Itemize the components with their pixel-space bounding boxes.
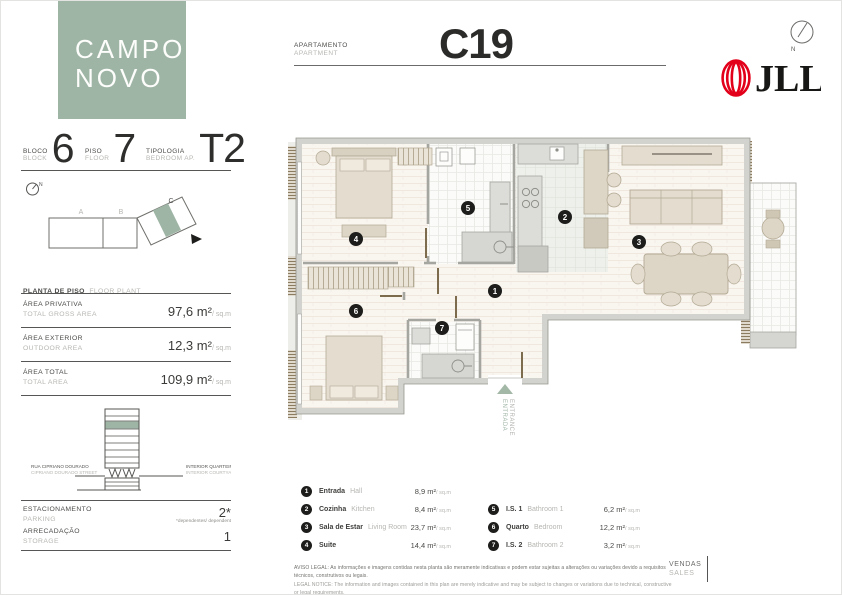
- legend-item-1: 1 Entrada Hall 8,9 m²/ sq.m: [301, 485, 451, 497]
- area-row-outdoor: ÁREA EXTERIOR OUTDOOR AREA 12,3 m²/ sq.m: [23, 335, 231, 352]
- floor-plan-label: PLANTA DE PISO FLOOR PLANT: [23, 280, 141, 298]
- divider: [21, 327, 231, 328]
- marker-5: 5: [466, 204, 471, 213]
- divider: [294, 65, 666, 66]
- toilet: [460, 148, 475, 164]
- legend-number: 1: [301, 486, 312, 497]
- legend-item-3: 3 Sala de Estar Living Room 23,7 m²/ sq.…: [301, 521, 451, 533]
- entrance-label-en: ENTRANCE: [508, 399, 514, 436]
- mini-compass-icon: N: [25, 180, 45, 198]
- street-label-en: CIPRIANO DOURADO STREET: [31, 470, 98, 475]
- terrace-table: [762, 217, 784, 239]
- area-row-private: ÁREA PRIVATIVA TOTAL GROSS AREA 97,6 m²/…: [23, 301, 231, 318]
- storage-label-pt: ARRECADAÇÃO: [23, 528, 231, 535]
- jll-rings-icon: [723, 61, 750, 96]
- mini-compass-n: N: [39, 182, 43, 188]
- parking-note: *dependentes/ dependent: [176, 519, 231, 524]
- terrace-chair: [766, 240, 780, 248]
- floor-plan-sheet: CAMPO NOVO BLOCO BLOCK 6 PISO FLOOR 7 TI…: [0, 0, 842, 595]
- campo-novo-logo: CAMPO NOVO: [58, 1, 186, 119]
- terrace-chair: [766, 210, 780, 218]
- marker-3: 3: [637, 238, 642, 247]
- divider: [21, 550, 231, 551]
- legend-number: 4: [301, 540, 312, 551]
- legend-item-7: 7 I.S. 2 Bathroom 2 3,2 m²/ sq.m: [488, 539, 640, 551]
- marker-6: 6: [354, 307, 359, 316]
- stat-typology-label-en: BEDROOM AP.: [146, 155, 195, 162]
- sales-label-en: SALES: [669, 570, 701, 577]
- stat-block-label-pt: BLOCO: [23, 148, 48, 155]
- legend-number: 7: [488, 540, 499, 551]
- terrace-wall: [750, 332, 796, 348]
- legend-item-5: 5 I.S. 1 Bathroom 1 6,2 m²/ sq.m: [488, 503, 640, 515]
- apartment-label: APARTAMENTO APARTMENT: [294, 42, 348, 57]
- legend-item-2: 2 Cozinha Kitchen 8,4 m²/ sq.m: [301, 503, 451, 515]
- footer-divider: [707, 556, 708, 582]
- tall-cabinet: [584, 150, 608, 214]
- jll-logo: JLL: [717, 49, 821, 105]
- courtyard-label-pt: INTERIOR QUARTEIRÃO: [186, 463, 231, 469]
- entrance-label-pt: ENTRADA: [501, 399, 507, 431]
- parking-row: ESTACIONAMENTO PARKING 2* *dependentes/ …: [23, 506, 231, 523]
- marker-4: 4: [354, 235, 359, 244]
- sink: [412, 328, 430, 344]
- wardrobe: [398, 148, 432, 165]
- divider: [21, 500, 231, 501]
- area-outdoor-value: 12,3 m²/ sq.m: [168, 338, 231, 353]
- stat-floor: PISO FLOOR 7: [85, 132, 135, 166]
- cabinet: [518, 246, 548, 272]
- legend-number: 5: [488, 504, 499, 515]
- key-plan-label-b: B: [119, 209, 124, 216]
- stat-typology: TIPOLOGIA BEDROOM AP. T2: [146, 132, 245, 166]
- section-highlighted-floor: [106, 422, 139, 429]
- apartment-label-en: APARTMENT: [294, 50, 348, 57]
- key-plan-label-a: A: [79, 209, 84, 216]
- stat-block: BLOCO BLOCK 6: [23, 132, 74, 166]
- divider: [21, 395, 231, 396]
- nightstand: [386, 386, 398, 400]
- bench: [342, 225, 386, 237]
- apartment-floor-plan: 1 2 3 4 5 6 7 ENTRADA ENTRANCE: [286, 128, 831, 438]
- stat-block-value: 6: [52, 132, 74, 166]
- key-plan-arrow-icon: [191, 234, 202, 244]
- legal-notice-pt: AVISO LEGAL: As informações e imagens co…: [294, 564, 672, 581]
- divider: [21, 293, 231, 294]
- area-private-value: 97,6 m²/ sq.m: [168, 304, 231, 319]
- marker-2: 2: [563, 213, 568, 222]
- legal-notice-en: LEGAL NOTICE: The information and images…: [294, 581, 672, 595]
- logo-line-1: CAMPO: [75, 35, 186, 64]
- area-total-value: 109,9 m²/ sq.m: [161, 372, 231, 387]
- building-section-diagram: RUA CIPRIANO DOURADO CIPRIANO DOURADO ST…: [31, 406, 231, 498]
- unit-code: C19: [381, 20, 513, 68]
- stat-floor-label-en: FLOOR: [85, 155, 109, 162]
- pilotis-icon: [109, 469, 121, 477]
- stat-typology-label-pt: TIPOLOGIA: [146, 148, 195, 155]
- sales-label: VENDAS SALES: [669, 561, 701, 577]
- marker-1: 1: [493, 287, 498, 296]
- jll-wordmark: JLL: [755, 58, 821, 100]
- island: [584, 218, 608, 248]
- divider: [21, 170, 231, 171]
- legend-number: 2: [301, 504, 312, 515]
- counter: [518, 144, 578, 164]
- street-label-pt: RUA CIPRIANO DOURADO: [31, 464, 89, 469]
- pilotis-icon: [123, 469, 135, 477]
- stool: [607, 173, 621, 187]
- legend-number: 3: [301, 522, 312, 533]
- storage-value: 1: [224, 529, 231, 544]
- counter: [518, 176, 542, 254]
- stat-typology-value: T2: [199, 132, 245, 166]
- area-row-total: ÁREA TOTAL TOTAL AREA 109,9 m²/ sq.m: [23, 369, 231, 386]
- marker-7: 7: [440, 324, 445, 333]
- legal-notice: AVISO LEGAL: As informações e imagens co…: [294, 564, 672, 595]
- storage-label-en: STORAGE: [23, 538, 231, 545]
- sink: [436, 148, 452, 166]
- sideboard: [622, 146, 722, 165]
- parking-label-pt: ESTACIONAMENTO: [23, 506, 231, 513]
- legend-item-4: 4 Suite 14,4 m²/ sq.m: [301, 539, 451, 551]
- toilet: [456, 324, 474, 350]
- closet: [308, 267, 388, 289]
- logo-line-2: NOVO: [75, 64, 186, 93]
- window: [298, 162, 302, 254]
- divider: [21, 361, 231, 362]
- parking-value: 2*: [219, 505, 231, 520]
- key-plan-label-c: C: [168, 198, 173, 205]
- window: [298, 314, 302, 404]
- vanity: [490, 182, 510, 234]
- key-plan-diagram: A B C: [45, 194, 203, 260]
- stat-block-label-en: BLOCK: [23, 155, 48, 162]
- legend-item-6: 6 Quarto Bedroom 12,2 m²/ sq.m: [488, 521, 640, 533]
- stat-floor-value: 7: [113, 132, 135, 166]
- apartment-label-pt: APARTAMENTO: [294, 42, 348, 49]
- storage-row: ARRECADAÇÃO STORAGE 1: [23, 528, 231, 545]
- shower: [462, 232, 512, 262]
- sales-label-pt: VENDAS: [669, 561, 701, 568]
- legend-number: 6: [488, 522, 499, 533]
- dining-table: [644, 254, 728, 294]
- stool: [607, 193, 621, 207]
- nightstand: [316, 151, 330, 165]
- nightstand: [310, 386, 322, 400]
- sofa: [630, 190, 722, 224]
- terrace: [750, 183, 796, 335]
- stat-floor-label-pt: PISO: [85, 148, 109, 155]
- closet: [388, 267, 414, 287]
- courtyard-label-en: INTERIOR COURTYARD: [186, 470, 231, 475]
